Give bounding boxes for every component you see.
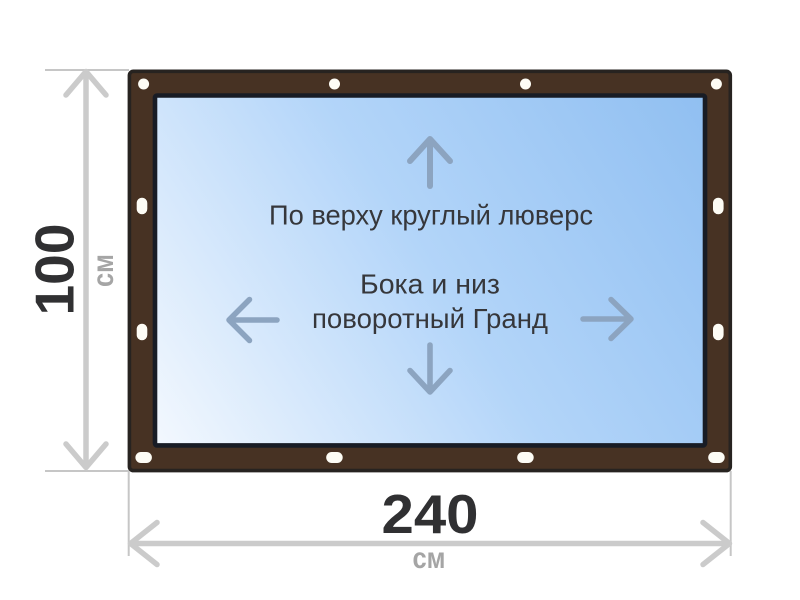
svg-text:поворотный Гранд: поворотный Гранд xyxy=(312,303,548,334)
svg-text:240: 240 xyxy=(382,483,479,545)
svg-text:100: 100 xyxy=(23,224,85,316)
svg-text:По верху круглый люверс: По верху круглый люверс xyxy=(269,200,593,231)
svg-text:см: см xyxy=(87,254,120,287)
svg-text:Бока и низ: Бока и низ xyxy=(360,269,500,300)
svg-text:см: см xyxy=(413,542,446,575)
